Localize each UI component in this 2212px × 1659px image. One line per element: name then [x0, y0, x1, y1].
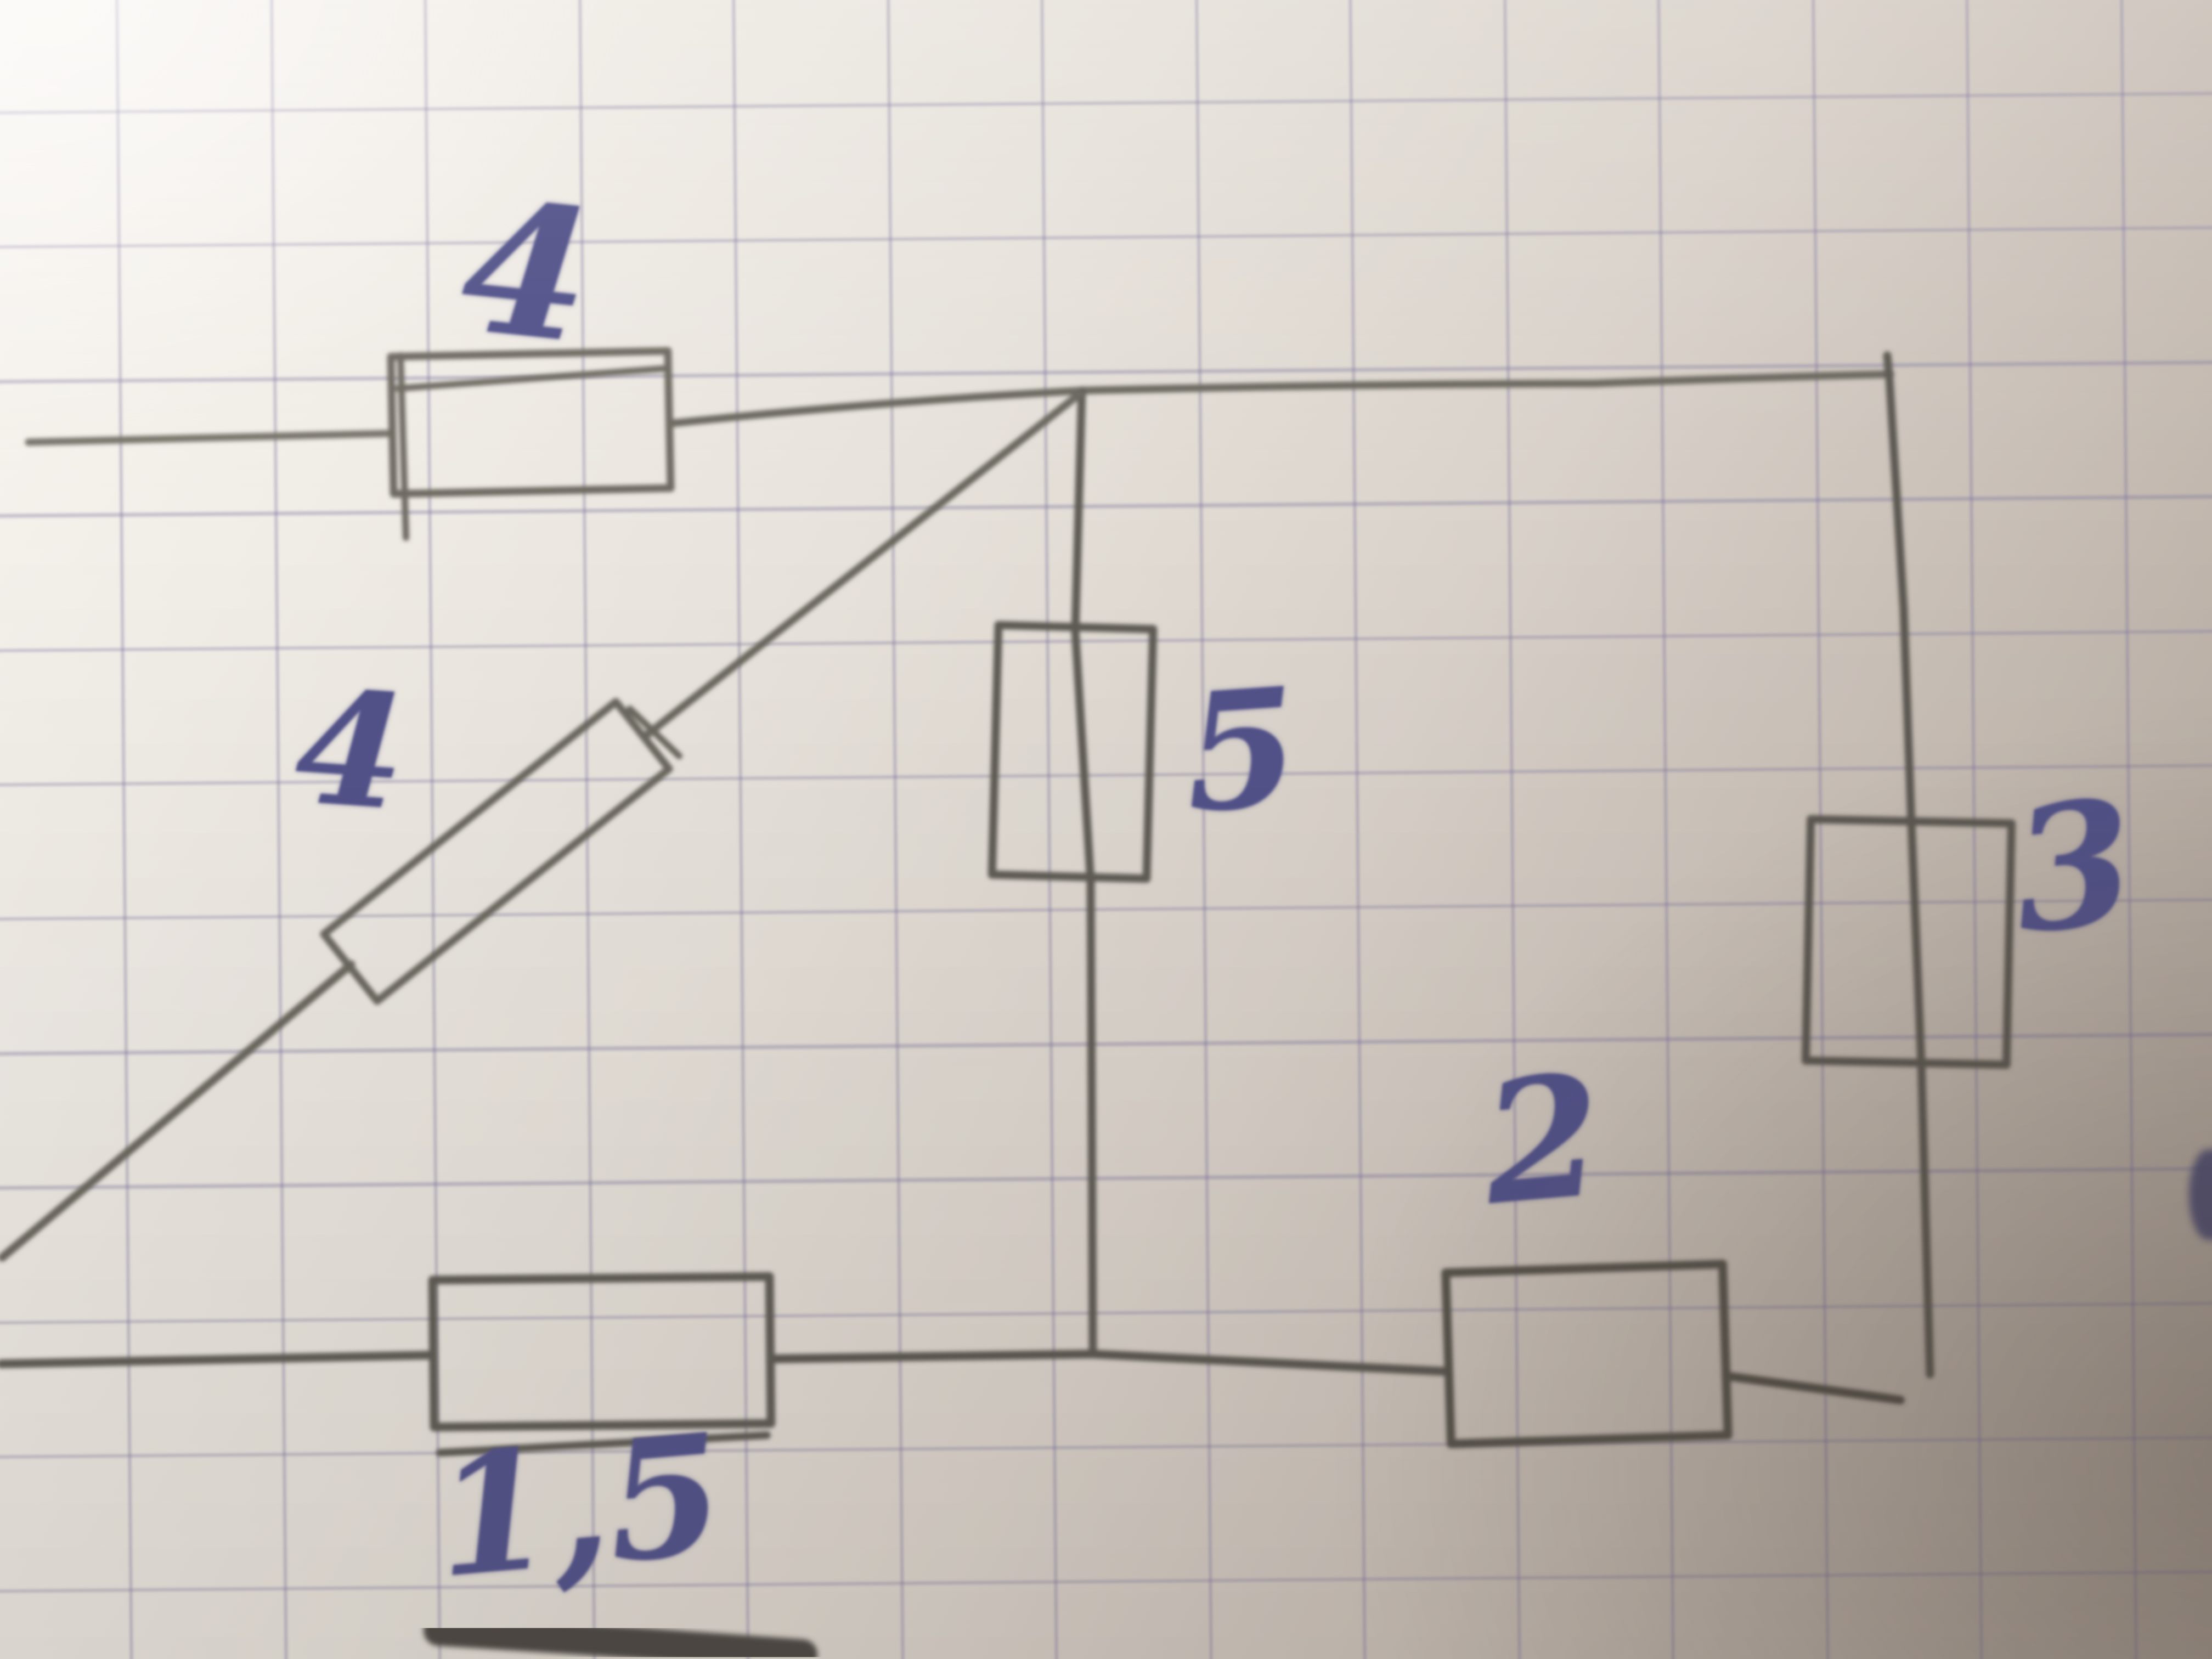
resistor-box-bottom-left: [433, 1277, 771, 1427]
resistor-value-diagonal: 4: [291, 668, 410, 832]
resistor-value-bottom-right: 2: [1477, 1051, 1608, 1228]
wire-middle-vertical: [1075, 391, 1093, 1354]
partial-resistor-bottom-edge: [439, 1630, 802, 1655]
resistor-box-middle: [992, 625, 1153, 878]
resistor-box-bottom-right: [1446, 1264, 1728, 1444]
resistor-value-bottom-left: 1,5: [430, 1412, 729, 1600]
resistor-value-top: 4: [454, 175, 599, 368]
resistor-value-right: 3: [2006, 776, 2141, 958]
wire-bottom-middle: [770, 1354, 1447, 1372]
wire-diagonal-upper: [645, 394, 1080, 736]
photo-of-circuit-sketch: 4 4 5 3 2 1,5: [0, 0, 2212, 1659]
wire-top-right: [670, 374, 1891, 424]
wire-right-vertical: [1887, 356, 1930, 1374]
wire-diagonal-lower: [2, 964, 351, 1257]
resistor-box-top-extra-stroke: [398, 356, 663, 538]
wire-top-left: [29, 433, 391, 442]
resistor-value-middle: 5: [1180, 665, 1303, 835]
wire-bottom-right: [1726, 1376, 1900, 1400]
wire-bottom-left: [1, 1355, 432, 1364]
